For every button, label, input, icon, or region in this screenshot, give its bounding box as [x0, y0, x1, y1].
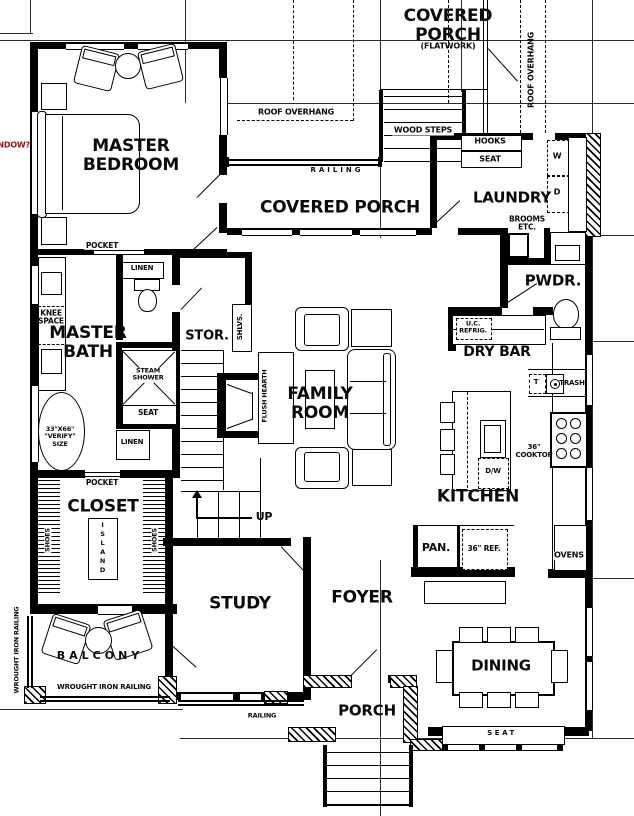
door-swing	[488, 48, 518, 82]
window-post	[516, 744, 522, 751]
chair-seat	[304, 314, 340, 346]
annotation-up: UP	[256, 511, 273, 523]
window	[242, 229, 292, 236]
side-table	[352, 449, 392, 486]
annotation-steam-shower: STEAM SHOWER	[130, 368, 165, 383]
fixture-trash: TRASH	[559, 380, 584, 388]
window-post	[479, 744, 485, 751]
hatched-wall	[288, 727, 336, 742]
wall	[563, 727, 589, 736]
closet-cabinet	[550, 232, 586, 265]
door-opening	[533, 133, 555, 140]
dining-chair	[436, 650, 453, 683]
annotation-wood-steps: WOOD STEPS	[392, 127, 454, 136]
wall	[500, 258, 548, 265]
door-opening	[432, 228, 458, 235]
railing-post	[378, 157, 382, 167]
roof-overhang-line	[520, 0, 521, 133]
railing	[40, 700, 170, 702]
annotation-railing-top: RAILING	[310, 167, 363, 175]
annotation-dining-seat: SEAT	[487, 730, 516, 738]
stair-edge	[325, 804, 413, 806]
wall	[303, 537, 311, 692]
grid-line	[0, 33, 33, 34]
door-swing	[173, 646, 197, 668]
room-label-dining: DINING	[471, 658, 531, 675]
fixture-refrigerator: 36" REF.	[467, 545, 500, 553]
wall	[120, 470, 180, 478]
side-table	[115, 53, 141, 79]
console-table	[424, 581, 506, 604]
up-arrow-leader	[196, 517, 252, 519]
toilet-tank	[550, 327, 581, 340]
nightstand	[41, 83, 67, 110]
grid-line	[0, 709, 183, 710]
annotation-uc-refrig: U.C. REFRIG.	[459, 321, 487, 336]
hatched-wall	[264, 691, 288, 704]
chair-back	[82, 48, 116, 66]
window-post	[442, 744, 448, 751]
burner	[556, 418, 567, 429]
annotation-roof-overhang: ROOF OVERHANG	[258, 109, 334, 118]
armchair	[295, 307, 349, 351]
laundry-counter	[568, 137, 587, 232]
hatched-wall	[410, 739, 446, 751]
annotation-linen-upper: LINEN	[131, 265, 154, 273]
grid-line	[185, 0, 186, 103]
window	[586, 355, 593, 405]
sink	[41, 272, 62, 295]
counter-line	[528, 396, 586, 397]
door-swing	[197, 174, 221, 198]
counter-line	[528, 369, 586, 370]
dining-chair	[487, 692, 511, 708]
roof-overhang-line	[353, 0, 354, 121]
side-table	[351, 309, 392, 347]
window	[586, 662, 593, 710]
door-swing	[181, 288, 203, 310]
annotation-wrought-iron-left: WROUGHT IRON RAILING	[13, 607, 20, 694]
annotation-pocket-master: POCKET	[84, 242, 120, 250]
recycle-icon-dot	[554, 383, 557, 386]
wall	[219, 135, 227, 175]
burner	[570, 418, 581, 429]
window	[586, 608, 593, 656]
annotation-hooks: HOOKS	[474, 138, 505, 147]
knee-space-dash	[38, 306, 64, 307]
annotation-railing-porch: RAILING	[248, 712, 276, 719]
chair-seat	[304, 452, 340, 482]
stool	[440, 429, 455, 451]
armchair	[295, 447, 349, 489]
annotation-flush-hearth: FLUSH HEARTH	[261, 369, 268, 422]
grid-line	[592, 578, 634, 579]
hatched-wall	[303, 675, 352, 688]
stair-rail	[409, 745, 413, 807]
burner	[570, 433, 581, 444]
fixture-ovens: OVENS	[554, 552, 584, 561]
annotation-shoes-right: SHOES	[151, 527, 158, 553]
stair-edge	[260, 458, 261, 538]
bay-window	[442, 744, 563, 751]
dining-chair	[515, 627, 539, 643]
railing	[178, 704, 304, 706]
railing	[27, 616, 29, 688]
broom-closet	[508, 233, 529, 258]
grid-line	[0, 40, 634, 41]
dining-chair	[459, 692, 483, 708]
firebox-line	[227, 384, 253, 394]
wall	[448, 307, 502, 315]
room-label-closet: CLOSET	[67, 497, 138, 516]
floor-plan: COVERED PORCH (FLATWORK) ROOF OVERHANG R…	[0, 0, 634, 816]
sofa-back	[383, 353, 391, 446]
room-label-balcony: BALCONY	[57, 650, 144, 662]
room-label-storage: STOR.	[185, 330, 228, 345]
toilet-bowl	[138, 289, 157, 312]
window	[360, 229, 416, 236]
stool	[440, 402, 455, 423]
fireplace-wall	[222, 431, 258, 438]
railing	[178, 700, 304, 702]
fireplace-wall	[217, 373, 226, 438]
nightstand	[41, 217, 67, 245]
railing	[40, 696, 170, 698]
room-label-study: STUDY	[209, 594, 271, 613]
fixture-washer: W	[553, 153, 562, 162]
fixture-pantry: PAN.	[422, 542, 450, 554]
stair-rail	[379, 90, 383, 162]
pocket-door	[94, 254, 144, 255]
sink-basin	[484, 425, 501, 453]
dining-chair	[515, 692, 539, 708]
annotation-linen-lower: LINEN	[121, 439, 144, 447]
annotation-wrought-iron-bottom: WROUGHT IRON RAILING	[57, 684, 151, 692]
pocket-door	[85, 472, 120, 473]
fixture-dishwasher: D/W	[485, 468, 501, 476]
fixture-cooktop: 36" COOKTOP	[516, 444, 553, 460]
wall	[30, 42, 227, 49]
firebox-line	[252, 392, 253, 420]
wall	[500, 228, 508, 308]
room-label-porch: PORCH	[338, 703, 396, 720]
grid-line	[592, 341, 634, 342]
annotation-tub-note: 33"X66" "VERIFY" SIZE	[44, 426, 75, 448]
roof-overhang-line	[545, 0, 546, 133]
up-arrow-shaft	[196, 496, 198, 518]
cooktop	[550, 412, 588, 468]
stool	[440, 454, 455, 475]
hatched-wall	[403, 686, 418, 743]
annotation-pocket-closet: POCKET	[84, 479, 120, 487]
island-sink	[480, 420, 506, 458]
up-arrow-head	[192, 490, 202, 498]
room-label-master-bath: MASTER BATH	[43, 324, 133, 362]
wall	[533, 307, 553, 315]
annotation-flatwork: (FLATWORK)	[421, 43, 476, 52]
railing	[227, 159, 380, 161]
fixture-dryer: D	[554, 189, 560, 198]
armchair	[73, 45, 120, 92]
window	[300, 229, 352, 236]
wall	[219, 203, 227, 233]
door-swing	[281, 546, 304, 571]
wall	[163, 538, 291, 546]
burner	[570, 448, 581, 459]
room-label-covered-porch-mid: COVERED PORCH	[260, 198, 420, 217]
room-label-foyer: FOYER	[331, 588, 392, 607]
porch-steps	[327, 752, 409, 806]
fixture-trash-pullout: T	[534, 379, 539, 387]
chair-back	[52, 617, 87, 637]
bed-pillow-line	[62, 116, 63, 210]
chair-back	[140, 46, 174, 64]
annotation-shelves: SHLVS.	[237, 314, 245, 340]
annotation-shower-seat: SEAT	[138, 409, 158, 417]
annotation-brooms: BROOMS ETC.	[509, 216, 545, 233]
dining-chair	[459, 627, 483, 643]
room-label-laundry: LAUNDRY	[473, 190, 551, 207]
pantry-wall	[457, 525, 460, 573]
ovens	[554, 525, 587, 571]
annotation-window-query: WINDOW?	[0, 142, 30, 151]
porch-edge	[380, 89, 487, 90]
annotation-roof-overhang-right: ROOF OVERHANG	[528, 32, 537, 108]
island-dash-line	[467, 392, 468, 488]
room-label-powder: PWDR.	[525, 273, 582, 290]
dining-chair	[487, 627, 511, 643]
wall	[428, 727, 442, 736]
grid-line	[30, 0, 31, 34]
dining-chair	[551, 650, 568, 683]
room-label-dry-bar: DRY BAR	[463, 345, 531, 361]
annotation-island: ISLAND	[98, 521, 105, 575]
burner	[556, 433, 567, 444]
stair-treads	[197, 492, 261, 538]
wall	[30, 470, 85, 478]
wall	[219, 42, 227, 78]
chair-back	[106, 613, 141, 633]
window	[220, 78, 228, 135]
hatched-wall	[585, 133, 601, 237]
wall	[430, 133, 437, 230]
annotation-shoes-left: SHOES	[44, 527, 51, 553]
door-opening	[172, 285, 180, 312]
window-post	[557, 744, 563, 751]
room-label-kitchen: KITCHEN	[437, 487, 519, 506]
pantry-wall	[413, 525, 418, 573]
pantry-edge	[414, 525, 514, 526]
railing	[31, 616, 33, 688]
sofa-cushion-line	[350, 381, 386, 382]
room-label-master-bedroom: MASTER BEDROOM	[69, 137, 194, 175]
annotation-seat-mud: SEAT	[479, 156, 500, 165]
window	[586, 468, 593, 520]
cabinet-box	[555, 245, 580, 261]
room-label-family-room: FAMILY ROOM	[280, 385, 360, 423]
firebox-line	[227, 419, 253, 429]
toilet-bowl	[553, 299, 579, 329]
door-swing	[350, 649, 378, 677]
roof-overhang-line	[293, 0, 294, 100]
roof-overhang-line	[237, 120, 353, 121]
room-label-covered-porch-upper: COVERED PORCH	[388, 7, 508, 45]
burner	[556, 448, 567, 459]
